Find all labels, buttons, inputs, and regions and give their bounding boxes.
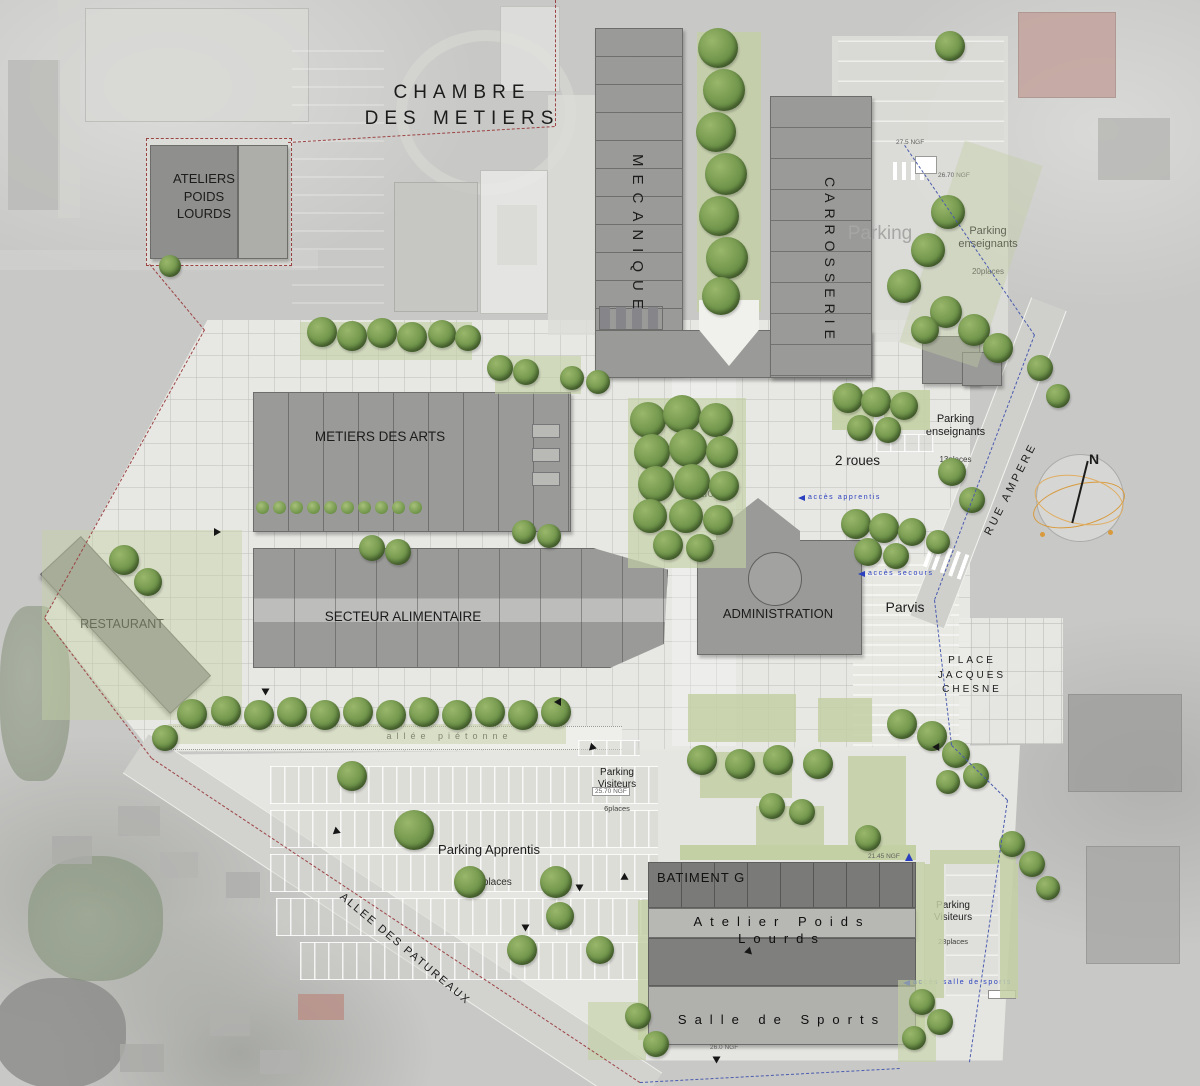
tree-icon	[898, 518, 926, 546]
tree-icon	[854, 538, 882, 566]
lawn-patch	[924, 864, 944, 998]
tree-icon	[763, 745, 793, 775]
tree-icon	[686, 534, 714, 562]
lawn-patch	[168, 724, 566, 744]
tree-icon	[703, 505, 733, 535]
tree-icon	[455, 325, 481, 351]
parking-enseignants-est-text: Parking enseignants	[926, 413, 985, 438]
metiers-skylight	[532, 424, 560, 438]
tree-icon	[705, 153, 747, 195]
label-secteur-alimentaire: SECTEUR ALIMENTAIRE	[318, 608, 488, 626]
tree-icon	[706, 436, 738, 468]
tree-icon	[703, 69, 745, 111]
tree-icon	[508, 700, 538, 730]
label-parking-existing: Parking	[840, 222, 920, 247]
tree-icon	[134, 568, 162, 596]
site-plan: CHAMBRE DES METIERS ATELIERS POIDS LOURD…	[0, 0, 1200, 1086]
bush-icon	[307, 501, 320, 514]
tree-icon	[211, 696, 241, 726]
access-secours: accès secours	[858, 570, 934, 577]
tree-icon	[397, 322, 427, 352]
tree-icon	[1046, 384, 1070, 408]
tree-icon	[759, 793, 785, 819]
aerial-house	[210, 1010, 250, 1036]
tree-icon	[277, 697, 307, 727]
aerial-building	[8, 60, 60, 210]
spot-elevation: 26.0 NGF	[710, 1044, 738, 1051]
label-parking-apprentis: Parking Apprentis 125places	[427, 826, 551, 889]
tree-icon	[307, 317, 337, 347]
tree-icon	[537, 524, 561, 548]
aerial-house	[226, 872, 260, 898]
tree-icon	[1019, 851, 1045, 877]
tree-icon	[938, 458, 966, 486]
tree-icon	[725, 749, 755, 779]
tree-icon	[674, 464, 710, 500]
aerial-house	[160, 852, 198, 878]
tree-icon	[926, 530, 950, 554]
access-secours-text: accès secours	[868, 570, 934, 577]
tree-icon	[560, 366, 584, 390]
aerial-woods	[28, 856, 163, 981]
direction-arrow-icon	[713, 1057, 721, 1064]
aerial-building	[1098, 118, 1170, 180]
bush-icon	[341, 501, 354, 514]
tree-icon	[385, 539, 411, 565]
tree-icon	[244, 700, 274, 730]
label-parvis: Parvis	[870, 598, 940, 616]
tree-icon	[669, 499, 703, 533]
tree-icon	[841, 509, 871, 539]
parking-apprentis-text: Parking Apprentis	[438, 842, 540, 857]
tree-icon	[875, 417, 901, 443]
label-salle-de-sports: Salle de Sports	[650, 1012, 914, 1029]
tree-icon	[540, 866, 572, 898]
tree-icon	[337, 321, 367, 351]
lawn-patch	[42, 530, 242, 720]
metiers-skylight	[532, 472, 560, 486]
label-mecanique: MECANIQUE	[610, 128, 646, 343]
tree-icon	[699, 196, 739, 236]
bush-icon	[256, 501, 269, 514]
tree-icon	[936, 770, 960, 794]
tree-icon	[931, 195, 965, 229]
tree-icon	[709, 471, 739, 501]
tree-icon	[409, 697, 439, 727]
bush-icon	[409, 501, 422, 514]
aerial-house	[118, 806, 160, 836]
tree-icon	[337, 761, 367, 791]
access-arrow-icon	[858, 571, 865, 577]
tree-icon	[833, 383, 863, 413]
tree-icon	[643, 1031, 669, 1057]
label-deux-roues: 2 roues	[820, 452, 895, 470]
tree-icon	[428, 320, 456, 348]
bush-icon	[375, 501, 388, 514]
spot-elevation: 21.45 NGF	[868, 853, 900, 860]
tree-icon	[963, 763, 989, 789]
tree-icon	[1027, 355, 1053, 381]
label-chambre-des-metiers: CHAMBRE DES METIERS	[362, 80, 562, 131]
access-apprentis: accès apprentis	[798, 494, 881, 501]
label-metiers-des-arts: METIERS DES ARTS	[305, 428, 455, 446]
parking-apprentis-stalls	[276, 898, 658, 936]
tree-icon	[855, 825, 881, 851]
aerial-pond	[0, 978, 126, 1086]
tree-icon	[698, 28, 738, 68]
label-ateliers-poids-lourds: ATELIERS POIDS LOURDS	[154, 170, 254, 223]
tree-icon	[890, 392, 918, 420]
direction-arrow-icon	[522, 925, 530, 932]
tree-icon	[927, 1009, 953, 1035]
tree-icon	[911, 316, 939, 344]
compass-dot	[1108, 530, 1113, 535]
tree-icon	[983, 333, 1013, 363]
bush-icon	[324, 501, 337, 514]
tree-icon	[699, 403, 733, 437]
spot-elevation: 27.5 NGF	[896, 139, 924, 146]
tree-icon	[512, 520, 536, 544]
compass-dot	[1040, 532, 1045, 537]
tree-icon	[789, 799, 815, 825]
parking-visiteurs-nord-places: 6places	[604, 804, 630, 813]
tree-icon	[359, 535, 385, 561]
tree-icon	[706, 237, 748, 279]
aerial-house	[260, 1050, 300, 1074]
direction-arrow-icon	[576, 885, 584, 892]
tree-icon	[475, 697, 505, 727]
tree-icon	[861, 387, 891, 417]
tree-icon	[159, 255, 181, 277]
aerial-building-red-roof	[1018, 12, 1116, 98]
boundary-line	[555, 0, 556, 126]
boundary-line	[640, 1068, 900, 1083]
tree-icon	[634, 434, 670, 470]
north-compass: N	[1032, 450, 1127, 545]
label-carrosserie: CARROSSERIE	[802, 146, 838, 376]
tree-icon	[343, 697, 373, 727]
tree-icon	[152, 725, 178, 751]
tree-icon	[803, 749, 833, 779]
tree-icon	[630, 402, 666, 438]
tree-icon	[911, 233, 945, 267]
tree-icon	[702, 277, 740, 315]
label-parking-visiteurs-nord: Parking Visiteurs 6places	[577, 755, 657, 815]
bush-icon	[392, 501, 405, 514]
administration-rotunda	[748, 552, 802, 606]
tree-icon	[847, 415, 873, 441]
spot-elevation: 25.70 NGF	[592, 787, 630, 796]
tree-icon	[669, 429, 707, 467]
tree-icon	[394, 810, 434, 850]
tree-icon	[367, 318, 397, 348]
lawn-patch	[818, 698, 872, 742]
label-atelier-poids-lourds: Atelier Poids Lourds	[650, 914, 914, 948]
tree-icon	[883, 543, 909, 569]
tree-icon	[586, 936, 614, 964]
access-apprentis-text: accès apprentis	[808, 494, 881, 501]
tree-icon	[663, 395, 701, 433]
tree-icon	[942, 740, 970, 768]
north-label: N	[1084, 450, 1104, 468]
bush-icon	[273, 501, 286, 514]
tree-icon	[1036, 876, 1060, 900]
tree-icon	[454, 866, 486, 898]
tree-icon	[687, 745, 717, 775]
tree-icon	[177, 699, 207, 729]
tree-icon	[507, 935, 537, 965]
tree-icon	[546, 902, 574, 930]
aerial-house-red-roof	[298, 994, 344, 1020]
chambre-building-block	[497, 205, 537, 265]
tree-icon	[586, 370, 610, 394]
label-administration: ADMINISTRATION	[708, 606, 848, 623]
tree-icon	[513, 359, 539, 385]
chambre-building-block	[394, 182, 478, 312]
tree-icon	[887, 709, 917, 739]
aerial-road	[58, 0, 80, 218]
aerial-house	[120, 1044, 164, 1072]
access-arrow-icon	[905, 853, 913, 861]
tree-icon	[902, 1026, 926, 1050]
tree-icon	[696, 112, 736, 152]
aerial-building	[85, 8, 309, 122]
tree-icon	[625, 1003, 651, 1029]
access-arrow-icon	[798, 495, 805, 501]
metiers-skylight	[532, 448, 560, 462]
tree-icon	[653, 530, 683, 560]
direction-arrow-icon	[214, 528, 221, 536]
tree-icon	[638, 466, 674, 502]
tree-icon	[442, 700, 472, 730]
bush-icon	[358, 501, 371, 514]
tree-icon	[376, 700, 406, 730]
tree-icon	[887, 269, 921, 303]
tree-icon	[109, 545, 139, 575]
lawn-patch	[1000, 864, 1018, 998]
aerial-building	[1068, 694, 1182, 792]
tree-icon	[487, 355, 513, 381]
tree-icon	[633, 499, 667, 533]
direction-arrow-icon	[554, 698, 561, 706]
label-batiment-g: BATIMENT G	[657, 870, 777, 887]
tree-icon	[310, 700, 340, 730]
tree-icon	[935, 31, 965, 61]
aerial-building	[1086, 846, 1180, 964]
label-place-jacques-chesne: PLACE JACQUES CHESNE	[922, 654, 1022, 698]
direction-arrow-icon	[262, 689, 270, 696]
aerial-house	[52, 836, 92, 864]
bush-icon	[290, 501, 303, 514]
lawn-patch	[688, 694, 796, 742]
